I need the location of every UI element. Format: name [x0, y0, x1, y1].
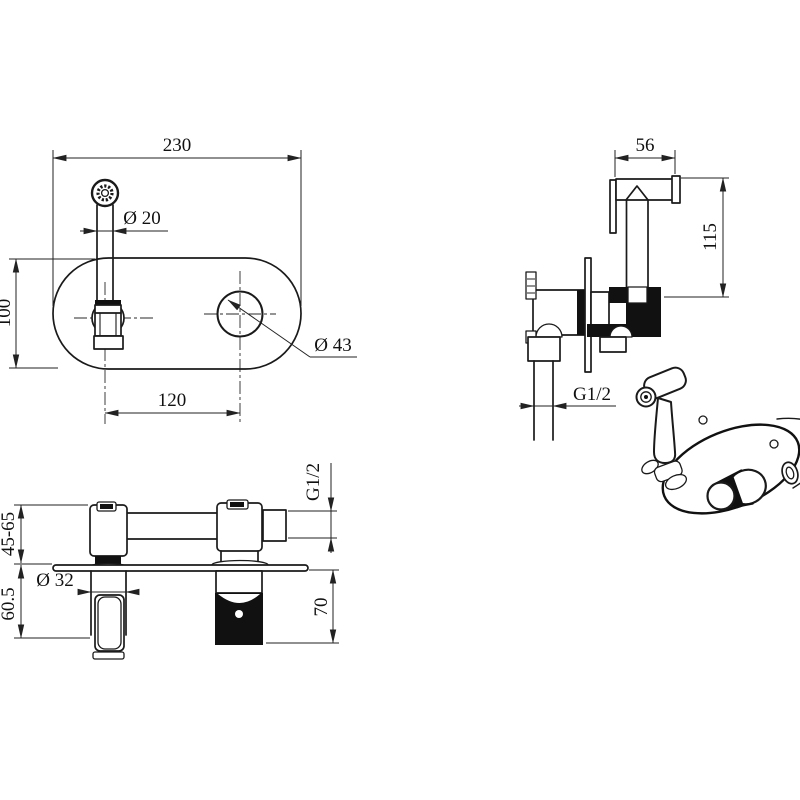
dim-label-front-valve-depth: 70: [311, 598, 332, 617]
bidet-sprayer-dimension-drawing: 230 Ø 20 100 Ø 43 120: [0, 0, 800, 800]
dim-front-shaft-dia: Ø 32: [36, 570, 139, 592]
front-holder-unit: [89, 502, 127, 571]
dim-plan-spout-dia: Ø 20: [80, 208, 168, 231]
dim-label-plan-spacing: 120: [158, 390, 187, 411]
dim-plan-height: 100: [0, 259, 95, 368]
front-mixer-unit: [212, 500, 286, 570]
dim-front-thread: G1/2: [288, 463, 337, 553]
dim-label-plan-hole-dia: Ø 43: [314, 335, 351, 356]
sprayer-head-outline: [92, 180, 118, 206]
front-box-dot: [235, 610, 243, 618]
technical-drawing-page: 230 Ø 20 100 Ø 43 120: [0, 0, 800, 800]
dim-label-front-depth-range: 45-65: [0, 512, 19, 556]
persp-sprayer: [637, 365, 689, 492]
plan-holder: [92, 300, 124, 349]
dim-label-side-thread: G1/2: [573, 384, 611, 405]
dim-front-depth-range: 45-65: [0, 505, 88, 564]
persp-screw-1: [699, 416, 707, 424]
holder-clip: [95, 305, 121, 336]
dim-side-head-width: 56: [615, 135, 675, 177]
dim-plan-width: 230: [53, 135, 301, 306]
front-mixer-box: [215, 571, 263, 645]
dim-label-front-thread: G1/2: [303, 463, 324, 501]
side-nozzle-face: [610, 180, 616, 233]
front-cup-flange: [93, 652, 124, 659]
front-holder-band: [95, 556, 121, 564]
perspective-view: [637, 365, 800, 531]
persp-sprayer-handle: [654, 398, 675, 463]
side-sprayer-head: [610, 176, 680, 233]
plan-oval-plate: [53, 258, 301, 369]
dim-label-front-shaft-dia: Ø 32: [36, 570, 73, 591]
holder-base: [94, 336, 123, 349]
persp-screw-2: [770, 440, 778, 448]
dim-plan-hole-dia: Ø 43: [228, 300, 357, 357]
dim-label-side-head-width: 56: [636, 135, 655, 156]
dim-label-front-below-plate: 60.5: [0, 587, 19, 620]
dim-label-side-height: 115: [700, 223, 721, 251]
side-handle-in-bracket: [628, 287, 647, 303]
dim-front-valve-depth: 70: [266, 570, 339, 643]
side-view: 56 115 G1/2: [519, 135, 729, 440]
dim-plan-spacing: 120: [105, 390, 240, 413]
dim-label-plan-width: 230: [163, 135, 192, 156]
dim-label-plan-spout-dia: Ø 20: [123, 208, 160, 229]
side-head-cap: [672, 176, 680, 203]
front-plate-edge: [53, 565, 308, 571]
side-outlet-left: [528, 337, 560, 361]
front-outlet-stub: [263, 510, 286, 541]
persp-knob-face: [708, 483, 735, 510]
dim-label-plan-height: 100: [0, 299, 15, 328]
front-holder-shaft: [91, 571, 126, 659]
front-view: 45-65 60.5 Ø 32 70 G1/2: [0, 463, 339, 659]
plan-view: 230 Ø 20 100 Ø 43 120: [0, 135, 357, 424]
side-outlet-mid: [600, 337, 626, 352]
side-flange-plate: [585, 258, 591, 372]
